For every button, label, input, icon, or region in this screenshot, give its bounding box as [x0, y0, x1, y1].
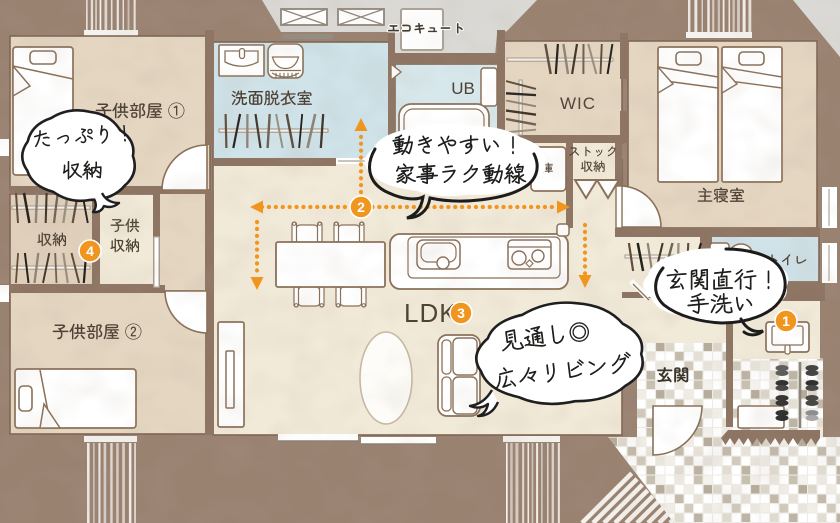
- svg-text:1: 1: [782, 313, 790, 329]
- svg-text:3: 3: [457, 305, 465, 321]
- svg-text:4: 4: [86, 243, 94, 259]
- svg-text:2: 2: [357, 199, 365, 215]
